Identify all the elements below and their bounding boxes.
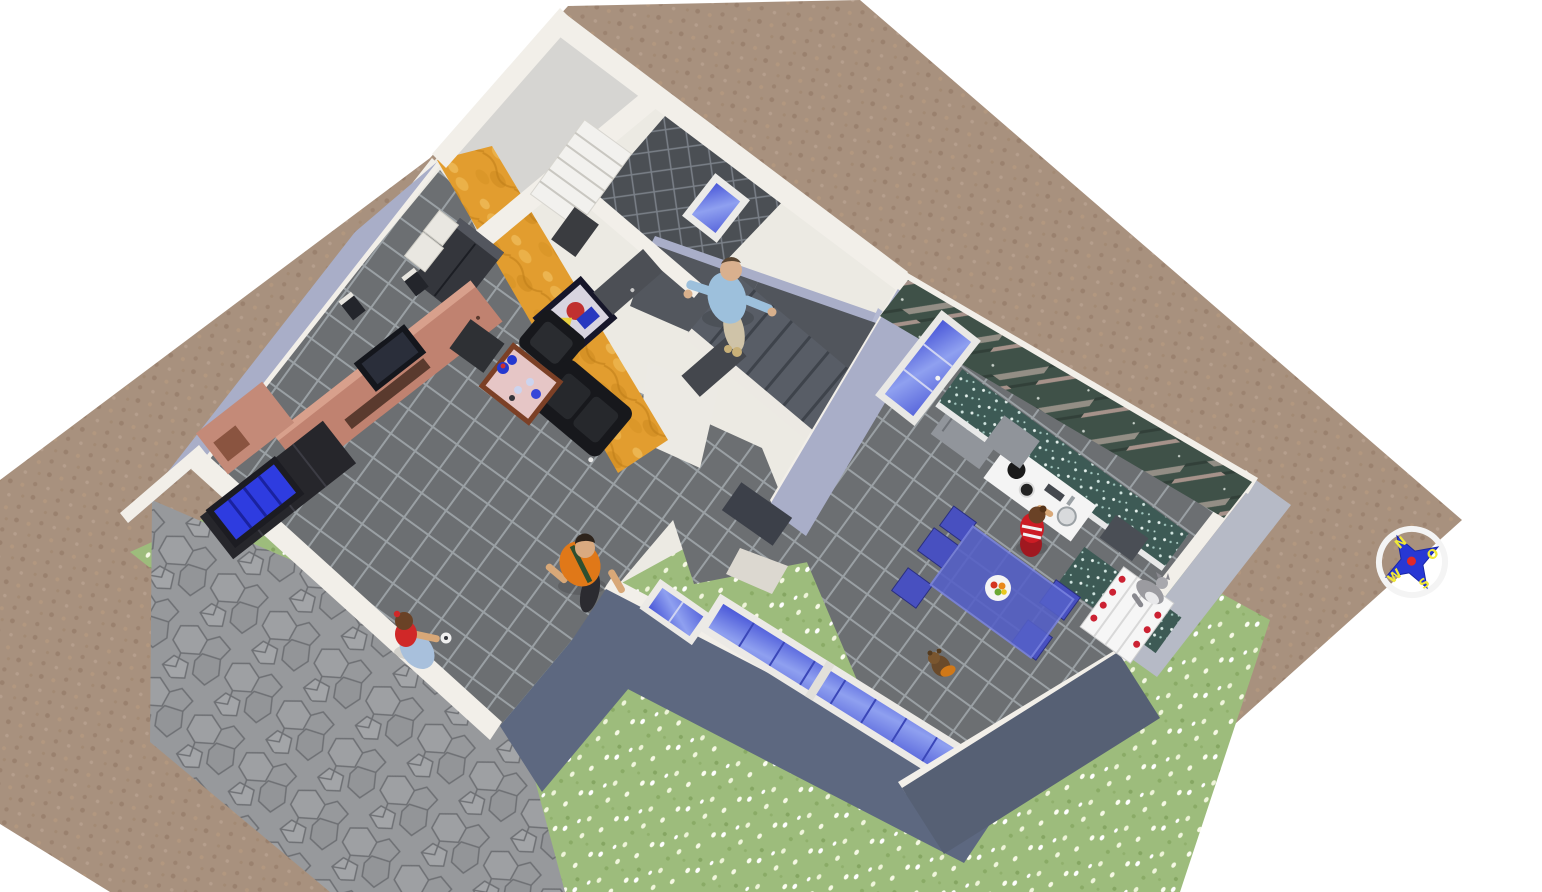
fruit-plate[interactable]: [985, 575, 1011, 601]
render-viewport: N S W O: [0, 0, 1542, 892]
home-3d-scene: N S W O: [0, 0, 1542, 892]
